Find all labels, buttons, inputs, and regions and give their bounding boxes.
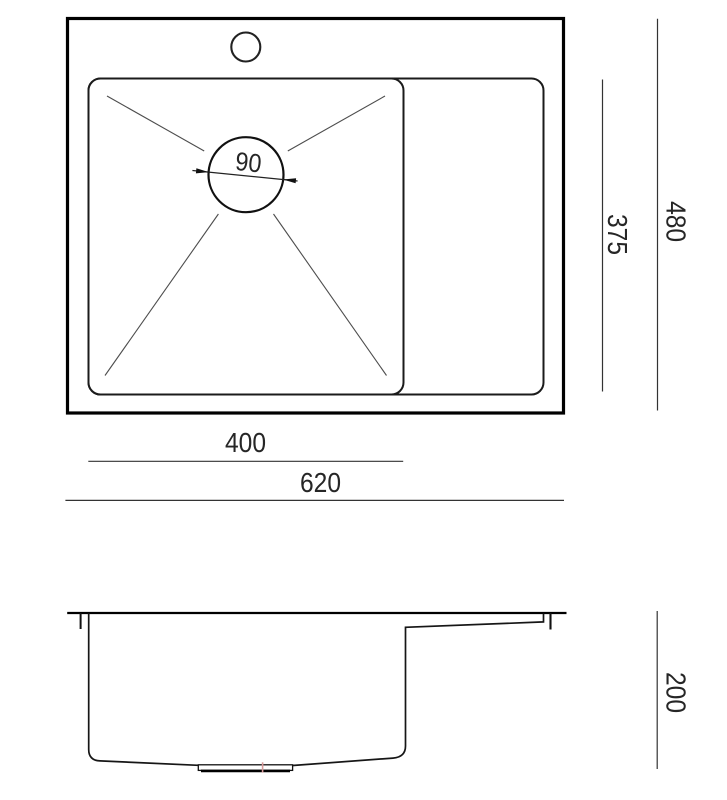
svg-text:620: 620 [300, 467, 341, 498]
svg-text:400: 400 [225, 427, 266, 458]
svg-text:200: 200 [661, 672, 692, 713]
svg-text:90: 90 [234, 146, 263, 178]
svg-text:480: 480 [660, 201, 691, 242]
svg-text:375: 375 [602, 214, 633, 255]
